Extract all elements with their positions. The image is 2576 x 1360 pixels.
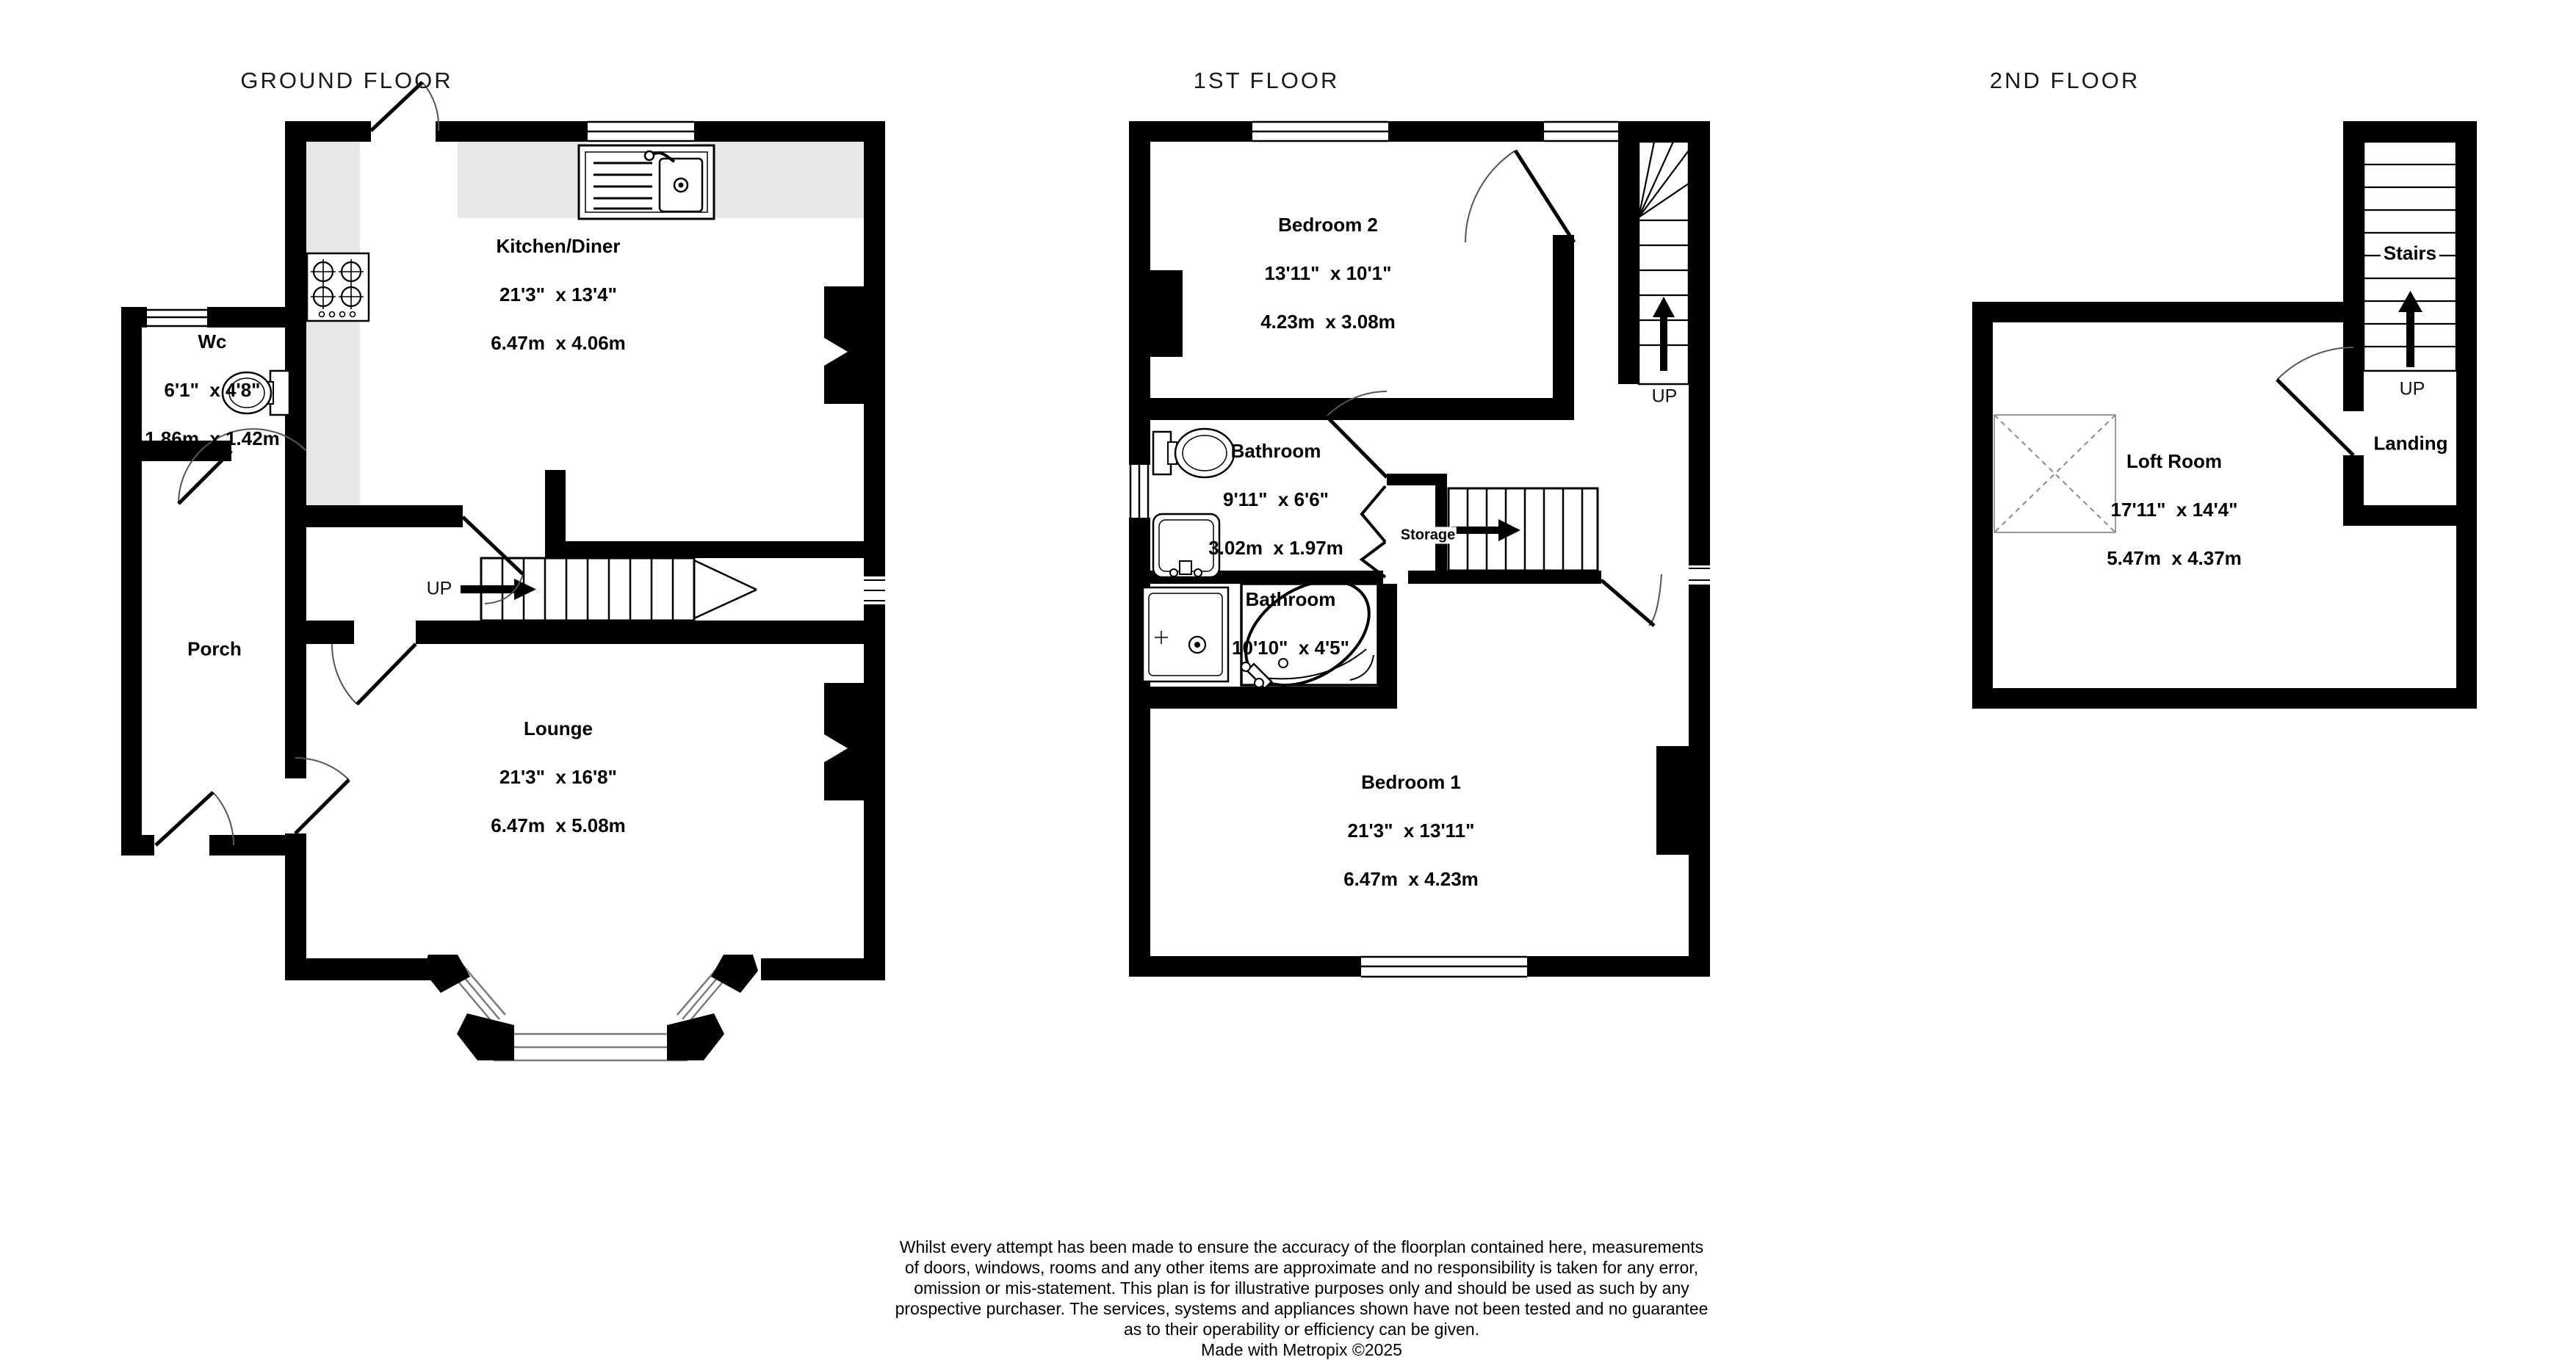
storage-bifold-doors [1362,486,1385,577]
lounge-label: Lounge 21'3" x 16'8" 6.47m x 5.08m [491,691,626,863]
porch-label: Porch [187,638,242,661]
loft-dashed-area [1994,415,2115,532]
room-name: Wc [145,330,280,352]
bathroom1-label: Bathroom 9'11" x 6'6" 3.02m x 1.97m [1208,413,1343,585]
room-name: Loft Room [2107,450,2242,472]
wc-label: Wc 6'1" x 4'8" 1.86m x 1.42m [145,304,280,476]
room-metric: 1.86m x 1.42m [145,427,280,449]
room-name: Kitchen/Diner [491,235,626,257]
room-imperial: 10'10" x 4'5" [1223,637,1358,659]
room-imperial: 21'3" x 13'4" [491,283,626,305]
up-label-second: UP [2400,379,2425,400]
kitchen-label: Kitchen/Diner 21'3" x 13'4" 6.47m x 4.06… [491,209,626,380]
bedroom1-label: Bedroom 1 21'3" x 13'11" 6.47m x 4.23m [1343,745,1479,916]
bedroom2-label: Bedroom 2 13'11" x 10'1" 4.23m x 3.08m [1260,187,1396,359]
first-floor-title: 1ST FLOOR [1194,68,1340,94]
room-metric: 6.47m x 4.23m [1343,868,1479,890]
room-name: Bathroom [1223,588,1358,610]
bathroom2-label: Bathroom 10'10" x 4'5" 3.30m x 1.35m [1223,562,1358,734]
up-label-ground: UP [427,579,452,600]
landing-door [2277,347,2353,455]
kitchen-counter-left [306,142,360,505]
winder-staircase [1639,142,1689,384]
room-metric: 5.47m x 4.37m [2107,547,2242,569]
floorplan-page: GROUND FLOOR 1ST FLOOR 2ND FLOOR Kitchen… [0,0,2576,1360]
room-imperial: 21'3" x 16'8" [491,766,626,788]
storage-label: Storage [1399,527,1457,544]
bedroom1-chimney-breast [1656,746,1689,855]
room-name: Bedroom 2 [1260,214,1396,236]
room-imperial: 21'3" x 13'11" [1343,820,1479,842]
bedroom2-chimney-breast [1150,270,1183,357]
room-name: Lounge [491,717,626,739]
ground-floor-title: GROUND FLOOR [240,68,452,94]
landing-label: Landing [2373,433,2447,455]
disclaimer-line-4: prospective purchaser. The services, sys… [895,1298,1709,1319]
room-metric: 6.47m x 5.08m [491,814,626,836]
room-imperial: 9'11" x 6'6" [1208,488,1343,510]
shower-tray [1143,587,1228,681]
kitchen-chimney-breast [824,286,864,404]
metropix-credit: Made with Metropix ©2025 [1201,1339,1402,1360]
second-floor-title: 2ND FLOOR [1990,68,2140,94]
hob [307,253,369,321]
kitchen-sink [579,145,714,219]
lounge-chimney-breast [824,683,864,800]
first-staircase [1448,488,1598,571]
room-metric: 4.23m x 3.08m [1260,311,1396,333]
room-metric: 6.47m x 4.06m [491,332,626,354]
room-metric: 3.02m x 1.97m [1208,537,1343,559]
room-name: Bedroom 1 [1343,771,1479,793]
disclaimer-line-2: of doors, windows, rooms and any other i… [905,1257,1698,1278]
ground-staircase [461,558,757,621]
stairs-label: Stairs [2381,242,2439,265]
second-floor-plan [1972,121,2477,709]
hall-label: Hall [351,507,386,530]
room-name: Bathroom [1208,440,1343,462]
disclaimer-line-5: as to their operability or efficiency ca… [1124,1319,1479,1339]
loft-room-label: Loft Room 17'11" x 14'4" 5.47m x 4.37m [2107,424,2242,596]
room-metric: 3.30m x 1.35m [1223,685,1358,707]
room-imperial: 6'1" x 4'8" [145,379,280,401]
up-label-first: UP [1652,386,1678,408]
bay-window [423,955,758,1060]
room-imperial: 17'11" x 14'4" [2107,499,2242,521]
disclaimer-line-3: omission or mis-statement. This plan is … [914,1278,1689,1298]
room-imperial: 13'11" x 10'1" [1260,262,1396,284]
disclaimer-line-1: Whilst every attempt has been made to en… [900,1237,1703,1257]
